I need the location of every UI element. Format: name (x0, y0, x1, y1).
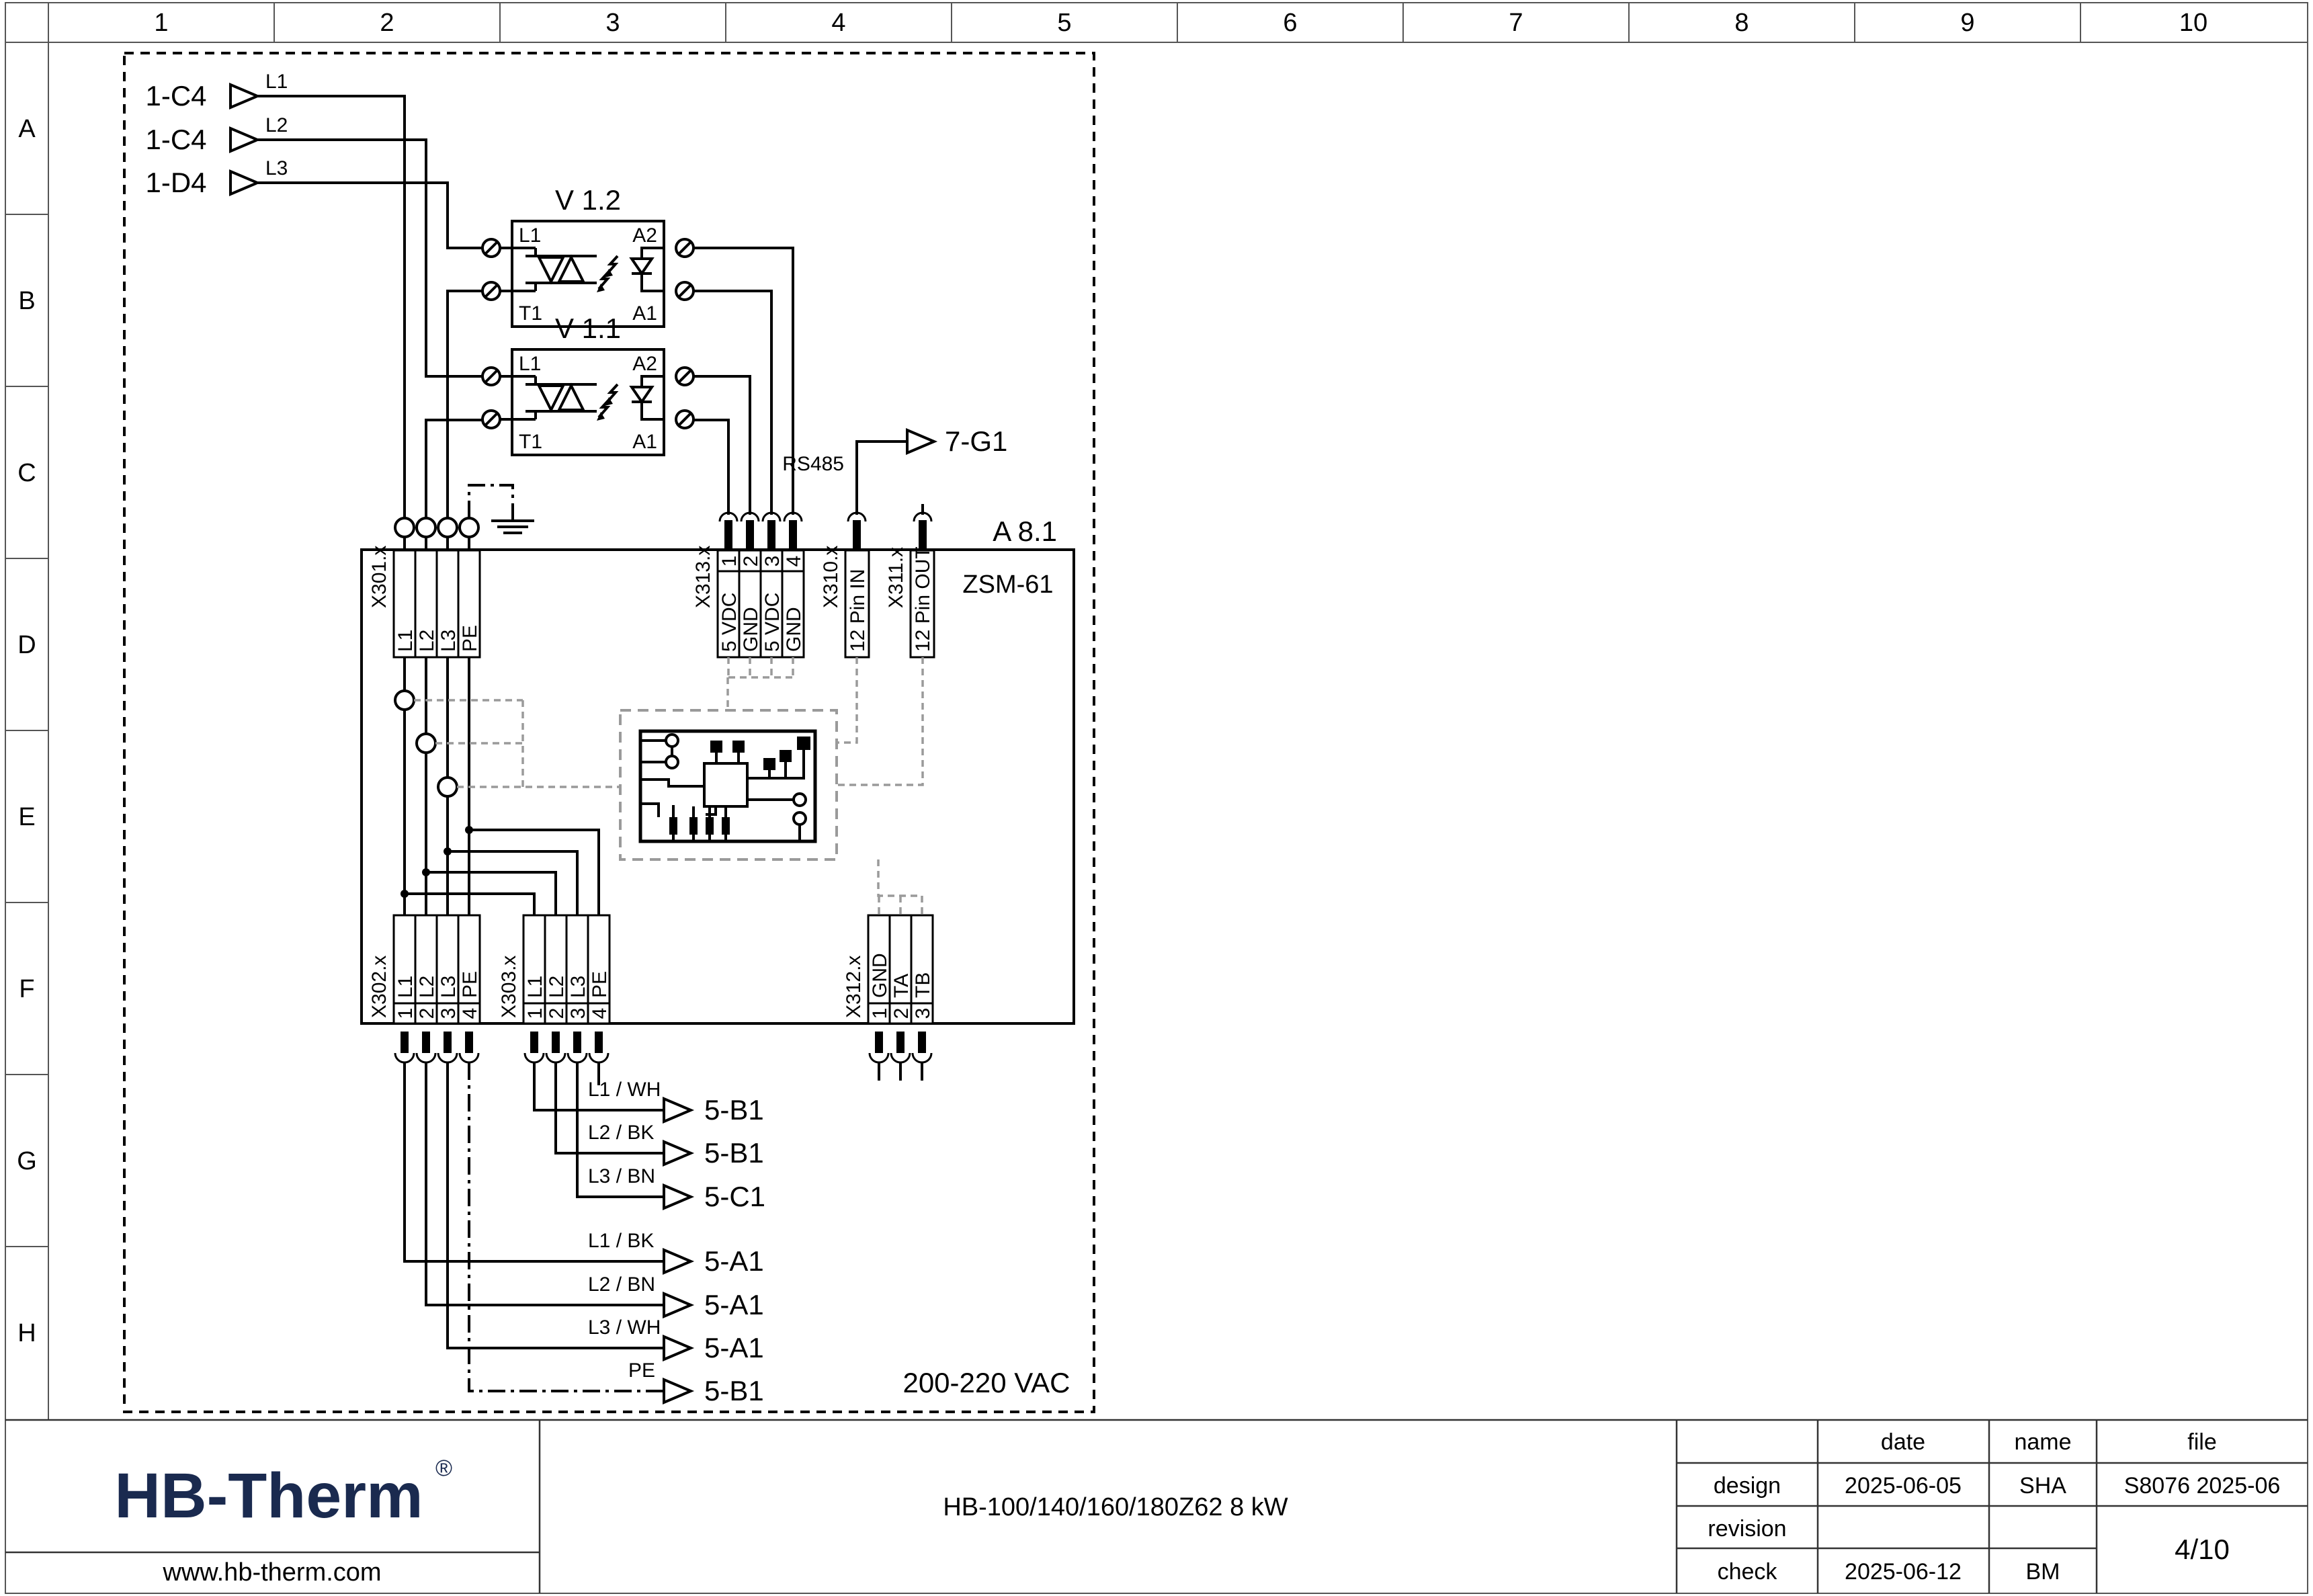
terminal-x311: X311.x 12 Pin OUT (885, 546, 934, 657)
check-date: 2025-06-12 (1845, 1559, 1962, 1585)
terminal-x312: X312.x GND TA TB 1 2 3 (843, 915, 934, 1023)
source-arrow-icon (230, 171, 257, 194)
rs485-arrow-icon (907, 430, 934, 453)
terminal-cell-label: PE (459, 625, 481, 652)
wire-label: L1 / WH (588, 1079, 661, 1101)
plug-icon (913, 1032, 931, 1062)
plug-icon (438, 1032, 457, 1062)
output-arrow-icon (664, 1099, 691, 1122)
terminal-pin: 3 (567, 1008, 589, 1019)
wire-label: L2 / BN (588, 1273, 655, 1296)
triac-optocoupler-icon (482, 368, 693, 428)
terminal-cell-label: L2 (416, 976, 438, 998)
rs485-target: 7-G1 (945, 425, 1007, 457)
website: www.hb-therm.com (162, 1558, 381, 1587)
terminal-pin: 1 (718, 556, 741, 567)
enclosure-boundary (124, 53, 1094, 1412)
relay-title: V 1.1 (555, 312, 621, 344)
terminal-cell-label: L1 (394, 630, 417, 652)
terminal-cell-label: PE (589, 971, 611, 998)
terminal-pin: 4 (459, 1008, 481, 1019)
grid-row-F: F (19, 975, 34, 1003)
phase-label: L2 (265, 114, 288, 136)
terminal-id: X303.x (498, 956, 520, 1018)
terminal-id: X313.x (692, 546, 714, 608)
terminal-cell-label: L2 (546, 976, 568, 998)
plug-icon (546, 1032, 565, 1062)
page-number: 4/10 (2175, 1534, 2230, 1565)
output-arrow-icon (664, 1294, 691, 1316)
terminal-cell-label: L3 (567, 976, 589, 998)
wiring-diagram: 1 2 3 4 5 6 7 8 9 10 A B C D E F G H 1-C… (0, 0, 2313, 1596)
terminal-cell-label: 5 VDC (718, 593, 741, 652)
relay-pin-label: A2 (632, 353, 657, 375)
relay-pin-label: L1 (519, 224, 541, 247)
terminal-pin: 2 (740, 556, 762, 567)
logo: HB-Therm ® www.hb-therm.com (114, 1456, 452, 1587)
output-target: 5-A1 (704, 1245, 764, 1277)
plug-icon (417, 1032, 435, 1062)
plug-icon (763, 513, 780, 550)
source-arrow-icon (230, 85, 257, 108)
relay-pin-label: L1 (519, 353, 541, 375)
terminal-cell-label: GND (783, 607, 805, 652)
terminal-id: X301.x (368, 546, 390, 608)
outputs-lower: L1 / BK 5-A1 L2 / BN 5-A1 L3 / WH 5-A1 P… (588, 1230, 764, 1406)
grid-row-H: H (17, 1319, 36, 1347)
plug-icon (784, 513, 802, 550)
plug-icon (741, 513, 759, 550)
plug-icon (848, 513, 866, 550)
source-arrow-icon (230, 128, 257, 151)
terminal-cell-label: GND (740, 607, 762, 652)
plug-icon (568, 1032, 587, 1062)
output-arrow-icon (664, 1337, 691, 1359)
plug-icon (460, 1032, 478, 1062)
drawing-frame: 1 2 3 4 5 6 7 8 9 10 A B C D E F G H (5, 3, 2308, 1593)
terminal-pin: 1 (869, 1008, 891, 1019)
grid-col-9: 9 (1960, 9, 1974, 37)
source-ref: 1-D4 (145, 167, 206, 198)
grid-col-6: 6 (1283, 9, 1297, 37)
relay-v11: V 1.1 L1 A2 T1 A1 (482, 312, 693, 455)
terminal-pin: 2 (890, 1008, 913, 1019)
terminal-id: X302.x (368, 956, 390, 1018)
output-arrow-icon (664, 1142, 691, 1165)
relay-title: V 1.2 (555, 184, 621, 216)
terminal-id: X311.x (885, 547, 907, 608)
wire-label: L1 / BK (588, 1230, 654, 1252)
title-block: HB-Therm ® www.hb-therm.com HB-100/140/1… (5, 1420, 2308, 1593)
module-name: ZSM-61 (962, 571, 1053, 599)
output-target: 5-B1 (704, 1094, 764, 1126)
supply-inputs: 1-C4 1-C4 1-D4 L1 L2 L3 (145, 71, 288, 198)
terminal-cell-label: GND (869, 953, 891, 998)
relay-pin-label: A1 (632, 431, 657, 453)
terminal-cell-label: TA (890, 974, 913, 998)
terminal-x313: X313.x 1 2 3 4 5 VDC GND 5 VDC GND (692, 546, 805, 657)
module-zsm61: A 8.1 ZSM-61 X301.x L1 L2 L3 PE (362, 513, 1074, 1062)
grid-col-2: 2 (380, 9, 394, 37)
grid-col-5: 5 (1057, 9, 1071, 37)
plug-icon (589, 1032, 608, 1062)
output-arrow-icon (664, 1380, 691, 1402)
rs485-link: RS485 7-G1 (782, 425, 1007, 515)
check-name: BM (2026, 1559, 2060, 1585)
relay-pin-label: T1 (519, 302, 542, 325)
output-target: 5-B1 (704, 1375, 764, 1406)
terminal-cell-label: 12 Pin IN (847, 569, 869, 652)
phase-label: L1 (265, 71, 288, 93)
terminal-cell-label: L1 (394, 976, 417, 998)
grid-row-C: C (17, 459, 36, 487)
output-target: 5-C1 (704, 1181, 765, 1212)
revision-table: date name file design 2025-06-05 SHA S80… (1708, 1429, 2280, 1585)
grid-col-10: 10 (2179, 9, 2207, 37)
module-ref: A 8.1 (993, 515, 1057, 547)
col-header-date: date (1881, 1429, 1925, 1455)
relay-v12: V 1.2 L1 A2 T1 A1 (482, 184, 693, 327)
terminal-x303: X303.x L1 L2 L3 PE 1 2 3 4 (498, 915, 611, 1023)
terminal-x302: X302.x L1 L2 L3 PE 1 2 3 4 (368, 915, 481, 1023)
ground-icon (491, 507, 534, 533)
grid-col-1: 1 (154, 9, 168, 37)
wire-label: L3 / BN (588, 1165, 655, 1187)
triac-optocoupler-icon (482, 239, 693, 300)
terminal-x301: X301.x L1 L2 L3 PE (368, 546, 481, 657)
grid-col-4: 4 (831, 9, 845, 37)
grid-col-7: 7 (1509, 9, 1523, 37)
design-date: 2025-06-05 (1845, 1473, 1962, 1499)
voltage-note: 200-220 VAC (902, 1367, 1070, 1398)
terminal-pin: 4 (783, 556, 805, 567)
outputs-upper: L1 / WH 5-B1 L2 / BK 5-B1 L3 / BN 5-C1 (588, 1079, 765, 1212)
output-target: 5-A1 (704, 1332, 764, 1363)
wire-label: L3 / WH (588, 1316, 661, 1339)
terminal-pin: 3 (912, 1008, 934, 1019)
plug-icon (914, 513, 931, 550)
pcb-graphic (620, 710, 837, 859)
terminal-x310: X310.x 12 Pin IN (820, 546, 869, 657)
terminal-cell-label: 12 Pin OUT (912, 546, 934, 652)
row-label: check (1718, 1559, 1778, 1585)
output-arrow-icon (664, 1250, 691, 1273)
grid-row-A: A (18, 115, 36, 143)
power-wiring (257, 96, 482, 550)
doc-title: HB-100/140/160/180Z62 8 kW (943, 1493, 1288, 1521)
col-header-file: file (2187, 1429, 2216, 1455)
terminal-cell-label: 5 VDC (761, 593, 784, 652)
wire-label: PE (628, 1359, 655, 1382)
plug-icon (870, 1032, 888, 1062)
terminal-pin: 1 (524, 1008, 546, 1019)
terminal-cell-label: L2 (416, 630, 438, 652)
row-label: design (1714, 1473, 1781, 1499)
terminal-cell-label: TB (912, 972, 934, 998)
terminal-pin: 3 (761, 556, 784, 567)
source-ref: 1-C4 (145, 80, 206, 112)
relay-pin-label: A1 (632, 302, 657, 325)
design-name: SHA (2019, 1473, 2066, 1499)
output-target: 5-B1 (704, 1137, 764, 1169)
row-label: revision (1708, 1516, 1786, 1542)
logo-text: HB-Therm (114, 1460, 423, 1531)
terminal-pin: 2 (416, 1008, 438, 1019)
terminal-cell-label: L3 (437, 976, 460, 998)
plug-icon (720, 513, 737, 550)
terminal-id: X310.x (820, 546, 842, 608)
file-value: S8076 2025-06 (2124, 1473, 2281, 1499)
col-header-name: name (2014, 1429, 2071, 1455)
phase-label: L3 (265, 157, 288, 179)
grid-col-8: 8 (1734, 9, 1749, 37)
terminal-cell-label: L1 (524, 976, 546, 998)
grid-row-E: E (18, 803, 35, 831)
wire-label: L2 / BK (588, 1122, 654, 1144)
grid-row-B: B (18, 287, 35, 315)
relay-pin-label: A2 (632, 224, 657, 247)
grid-col-3: 3 (605, 9, 620, 37)
schematic-page: 1 2 3 4 5 6 7 8 9 10 A B C D E F G H 1-C… (0, 0, 2313, 1596)
terminal-pin: 2 (546, 1008, 568, 1019)
source-ref: 1-C4 (145, 124, 206, 155)
rs485-label: RS485 (782, 453, 844, 475)
grid-row-G: G (17, 1147, 37, 1175)
output-target: 5-A1 (704, 1289, 764, 1320)
grid-row-D: D (17, 631, 36, 659)
terminal-cell-label: PE (459, 971, 481, 998)
plug-icon (525, 1032, 544, 1062)
terminal-pin: 3 (437, 1008, 460, 1019)
relay-pin-label: T1 (519, 431, 542, 453)
terminal-pin: 1 (394, 1008, 417, 1019)
plug-icon (891, 1032, 910, 1062)
plug-icon (395, 1032, 414, 1062)
terminal-pin: 4 (589, 1008, 611, 1019)
terminal-id: X312.x (843, 956, 865, 1018)
logo-registered-icon: ® (435, 1456, 452, 1481)
output-arrow-icon (664, 1185, 691, 1208)
terminal-cell-label: L3 (437, 630, 460, 652)
